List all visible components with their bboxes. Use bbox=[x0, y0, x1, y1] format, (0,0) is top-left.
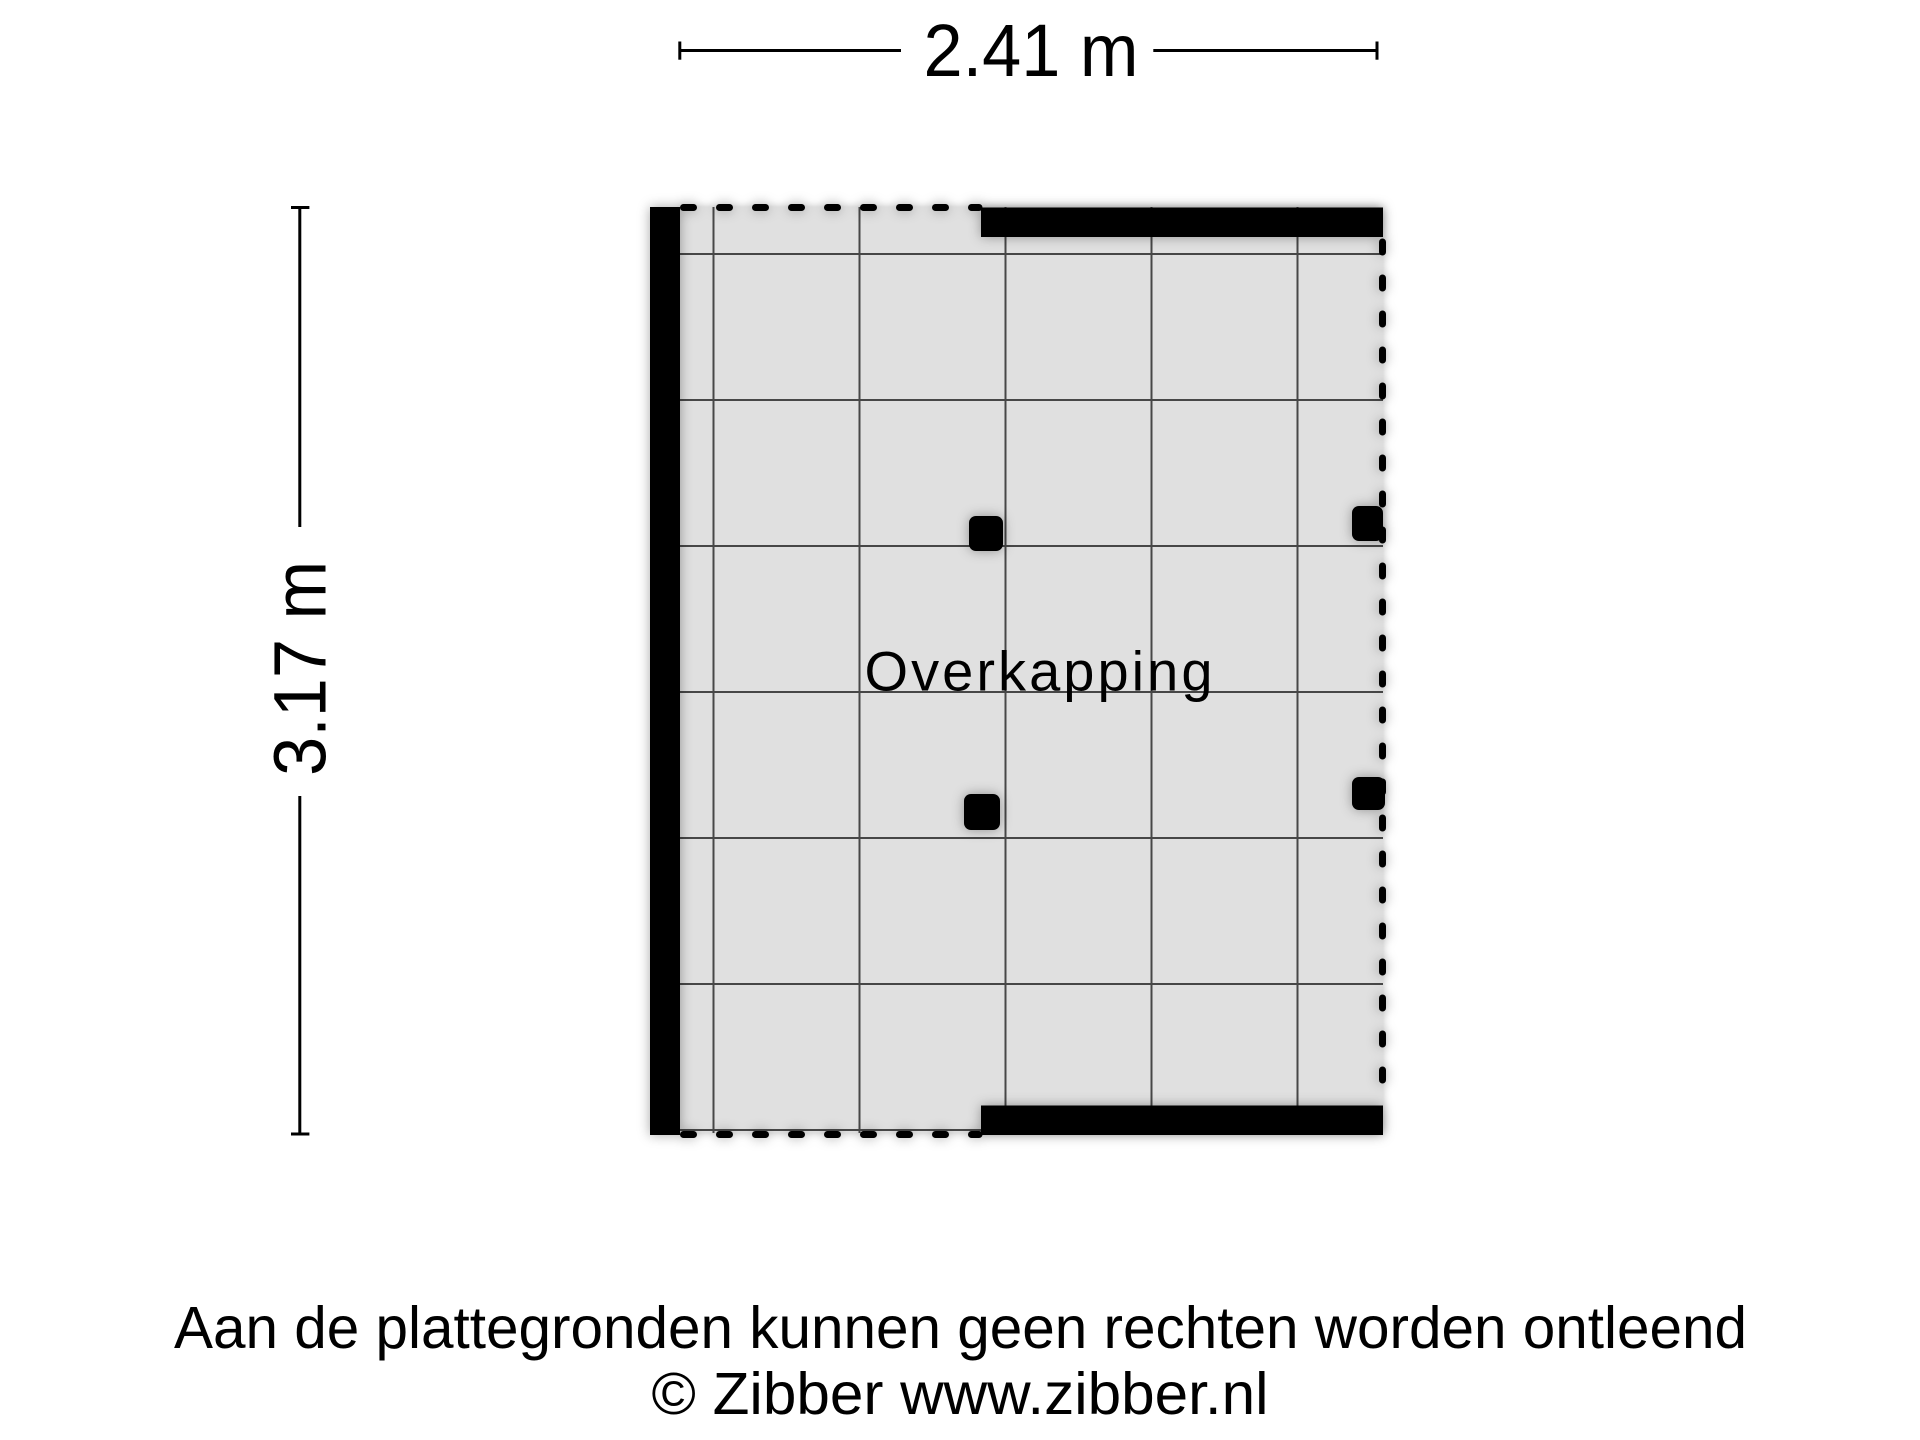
svg-text:Aan de plattegronden kunnen ge: Aan de plattegronden kunnen geen rechten… bbox=[174, 1294, 1747, 1361]
svg-text:Overkapping: Overkapping bbox=[865, 639, 1213, 702]
svg-text:3.17 m: 3.17 m bbox=[259, 561, 342, 776]
svg-text:© Zibber www.zibber.nl: © Zibber www.zibber.nl bbox=[652, 1360, 1269, 1427]
svg-text:2.41 m: 2.41 m bbox=[924, 9, 1139, 92]
